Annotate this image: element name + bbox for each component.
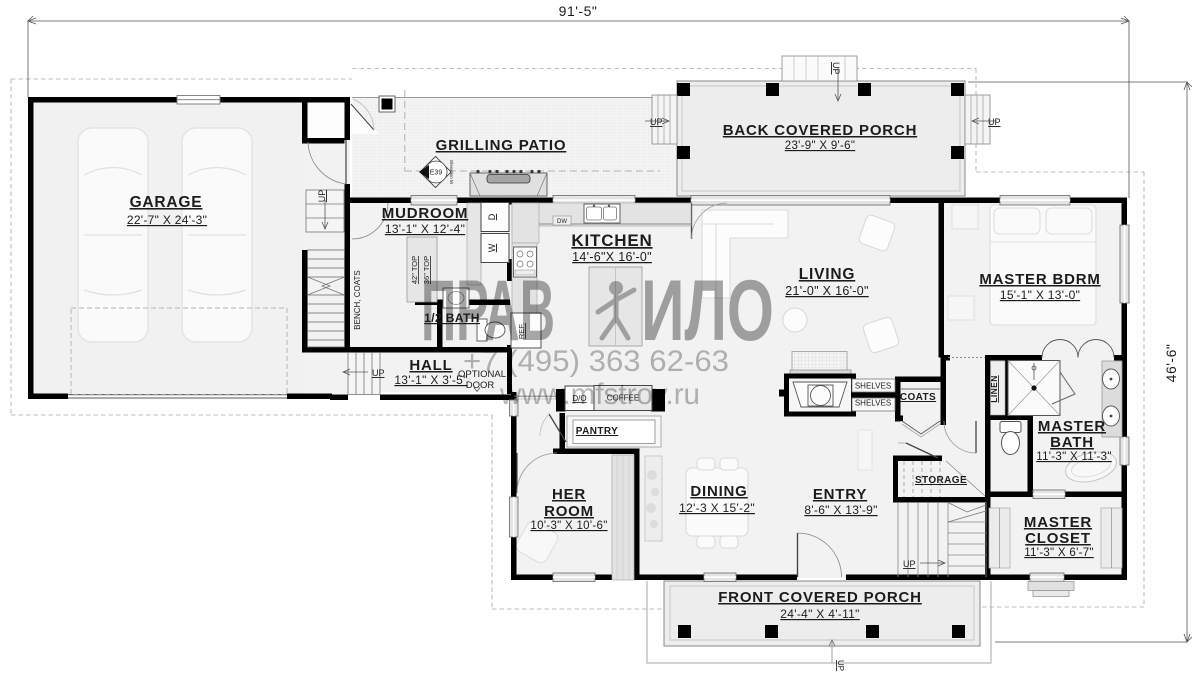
- svg-text:42" TOP: 42" TOP: [410, 256, 419, 284]
- svg-text:COATS: COATS: [900, 392, 936, 403]
- svg-text:UP: UP: [836, 660, 845, 671]
- svg-text:STORAGE: STORAGE: [915, 475, 967, 486]
- svg-text:ENTRY: ENTRY: [813, 486, 867, 503]
- svg-text:11'-3" X 11'-3": 11'-3" X 11'-3": [1036, 451, 1111, 463]
- svg-text:24'-4" X 4'-11": 24'-4" X 4'-11": [780, 607, 859, 621]
- svg-text:CLOSET: CLOSET: [1025, 530, 1091, 547]
- svg-text:LINEN: LINEN: [989, 375, 999, 403]
- svg-text:22'-7" X 24'-3": 22'-7" X 24'-3": [127, 213, 207, 227]
- svg-text:SHELVES: SHELVES: [855, 382, 891, 391]
- svg-text:MASTER BDRM: MASTER BDRM: [979, 271, 1100, 288]
- svg-text:10'-3" X 10'-6": 10'-3" X 10'-6": [530, 520, 607, 532]
- svg-text:UP: UP: [988, 117, 1001, 127]
- svg-text:BACK COVERED PORCH: BACK COVERED PORCH: [723, 122, 917, 139]
- svg-text:46'-6": 46'-6": [1163, 344, 1179, 383]
- svg-text:ROOM: ROOM: [544, 503, 594, 520]
- svg-text:11'-3" X 6'-7": 11'-3" X 6'-7": [1024, 547, 1094, 559]
- svg-text:23'-9" X 9'-6": 23'-9" X 9'-6": [785, 140, 855, 152]
- svg-text:UP: UP: [831, 62, 841, 75]
- svg-text:SHELVES: SHELVES: [855, 399, 891, 408]
- svg-text:E39: E39: [430, 170, 443, 177]
- svg-text:UP: UP: [650, 117, 663, 127]
- svg-text:www.mfstroy.ru: www.mfstroy.ru: [499, 378, 700, 411]
- svg-text:HER: HER: [552, 486, 586, 503]
- svg-text:BENCH, COATS: BENCH, COATS: [353, 270, 362, 329]
- svg-text:8'-6" X 13'-9": 8'-6" X 13'-9": [804, 503, 877, 517]
- svg-text:W: W: [487, 243, 497, 252]
- svg-text:12'-3 X 15'-2": 12'-3 X 15'-2": [679, 501, 755, 515]
- svg-text:HALL: HALL: [409, 357, 452, 374]
- svg-text:91'-5": 91'-5": [559, 3, 598, 19]
- svg-text:GARAGE: GARAGE: [130, 194, 203, 211]
- svg-text:14'-6"X 16'-0": 14'-6"X 16'-0": [572, 250, 652, 264]
- svg-text:LIVING: LIVING: [799, 266, 855, 283]
- svg-text:D: D: [487, 213, 497, 220]
- svg-text:KITCHEN: KITCHEN: [571, 231, 652, 250]
- svg-text:MUDROOM: MUDROOM: [382, 205, 468, 222]
- svg-text:UP: UP: [372, 368, 385, 378]
- svg-text:DINING: DINING: [690, 483, 747, 500]
- svg-text:DOOR: DOOR: [466, 380, 495, 391]
- svg-text:UP: UP: [317, 190, 327, 203]
- svg-text:15'-1" X 13'-0": 15'-1" X 13'-0": [1000, 288, 1080, 302]
- svg-text:MASTER: MASTER: [1024, 514, 1092, 531]
- svg-text:21'-0" X 16'-0": 21'-0" X 16'-0": [785, 284, 868, 298]
- svg-text:PANTRY: PANTRY: [576, 426, 618, 437]
- svg-text:OPTIONAL: OPTIONAL: [458, 369, 506, 380]
- svg-text:DW: DW: [557, 219, 567, 225]
- svg-text:1/2 BATH: 1/2 BATH: [424, 311, 480, 325]
- svg-text:BATH: BATH: [1050, 434, 1094, 451]
- svg-text:Elevation M: Elevation M: [449, 160, 454, 184]
- svg-text:GRILLING PATIO: GRILLING PATIO: [436, 137, 567, 154]
- svg-text:UP: UP: [903, 559, 916, 569]
- svg-text:FRONT COVERED PORCH: FRONT COVERED PORCH: [718, 589, 922, 606]
- svg-text:13'-1" X 12'-4": 13'-1" X 12'-4": [385, 222, 465, 236]
- svg-text:13'-1" X 3'-5": 13'-1" X 3'-5": [394, 373, 467, 387]
- svg-text:MASTER: MASTER: [1038, 418, 1106, 435]
